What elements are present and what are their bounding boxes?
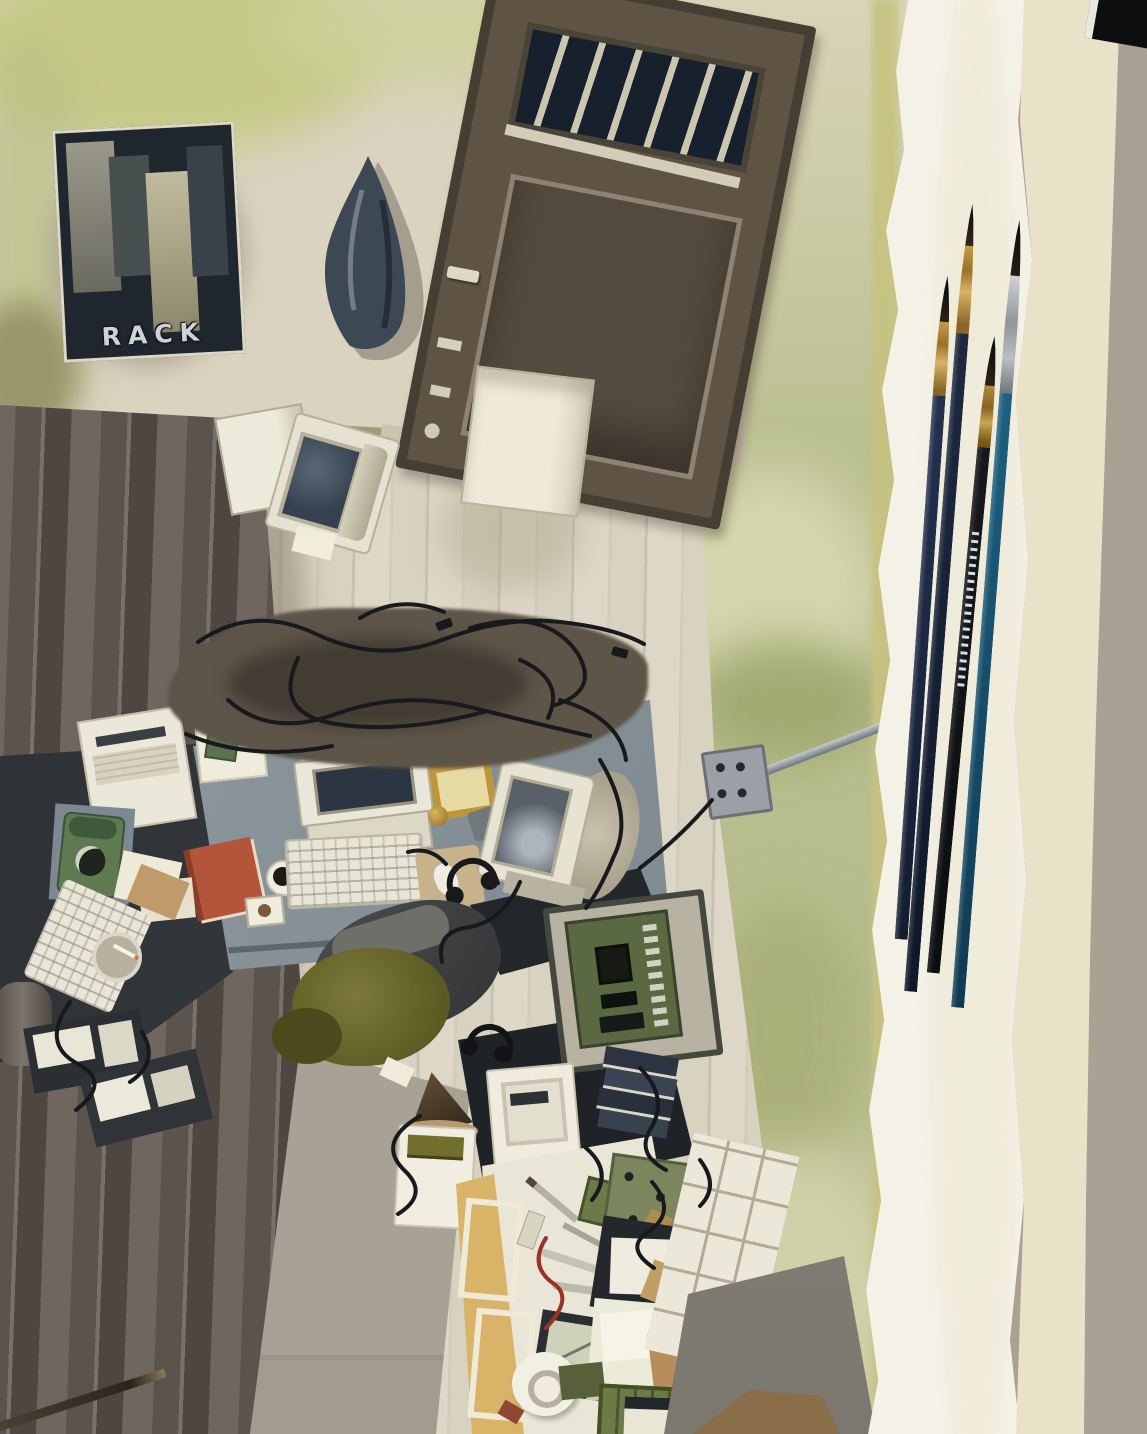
photo-of-watercolor-painting: RACK (0, 0, 1147, 1434)
